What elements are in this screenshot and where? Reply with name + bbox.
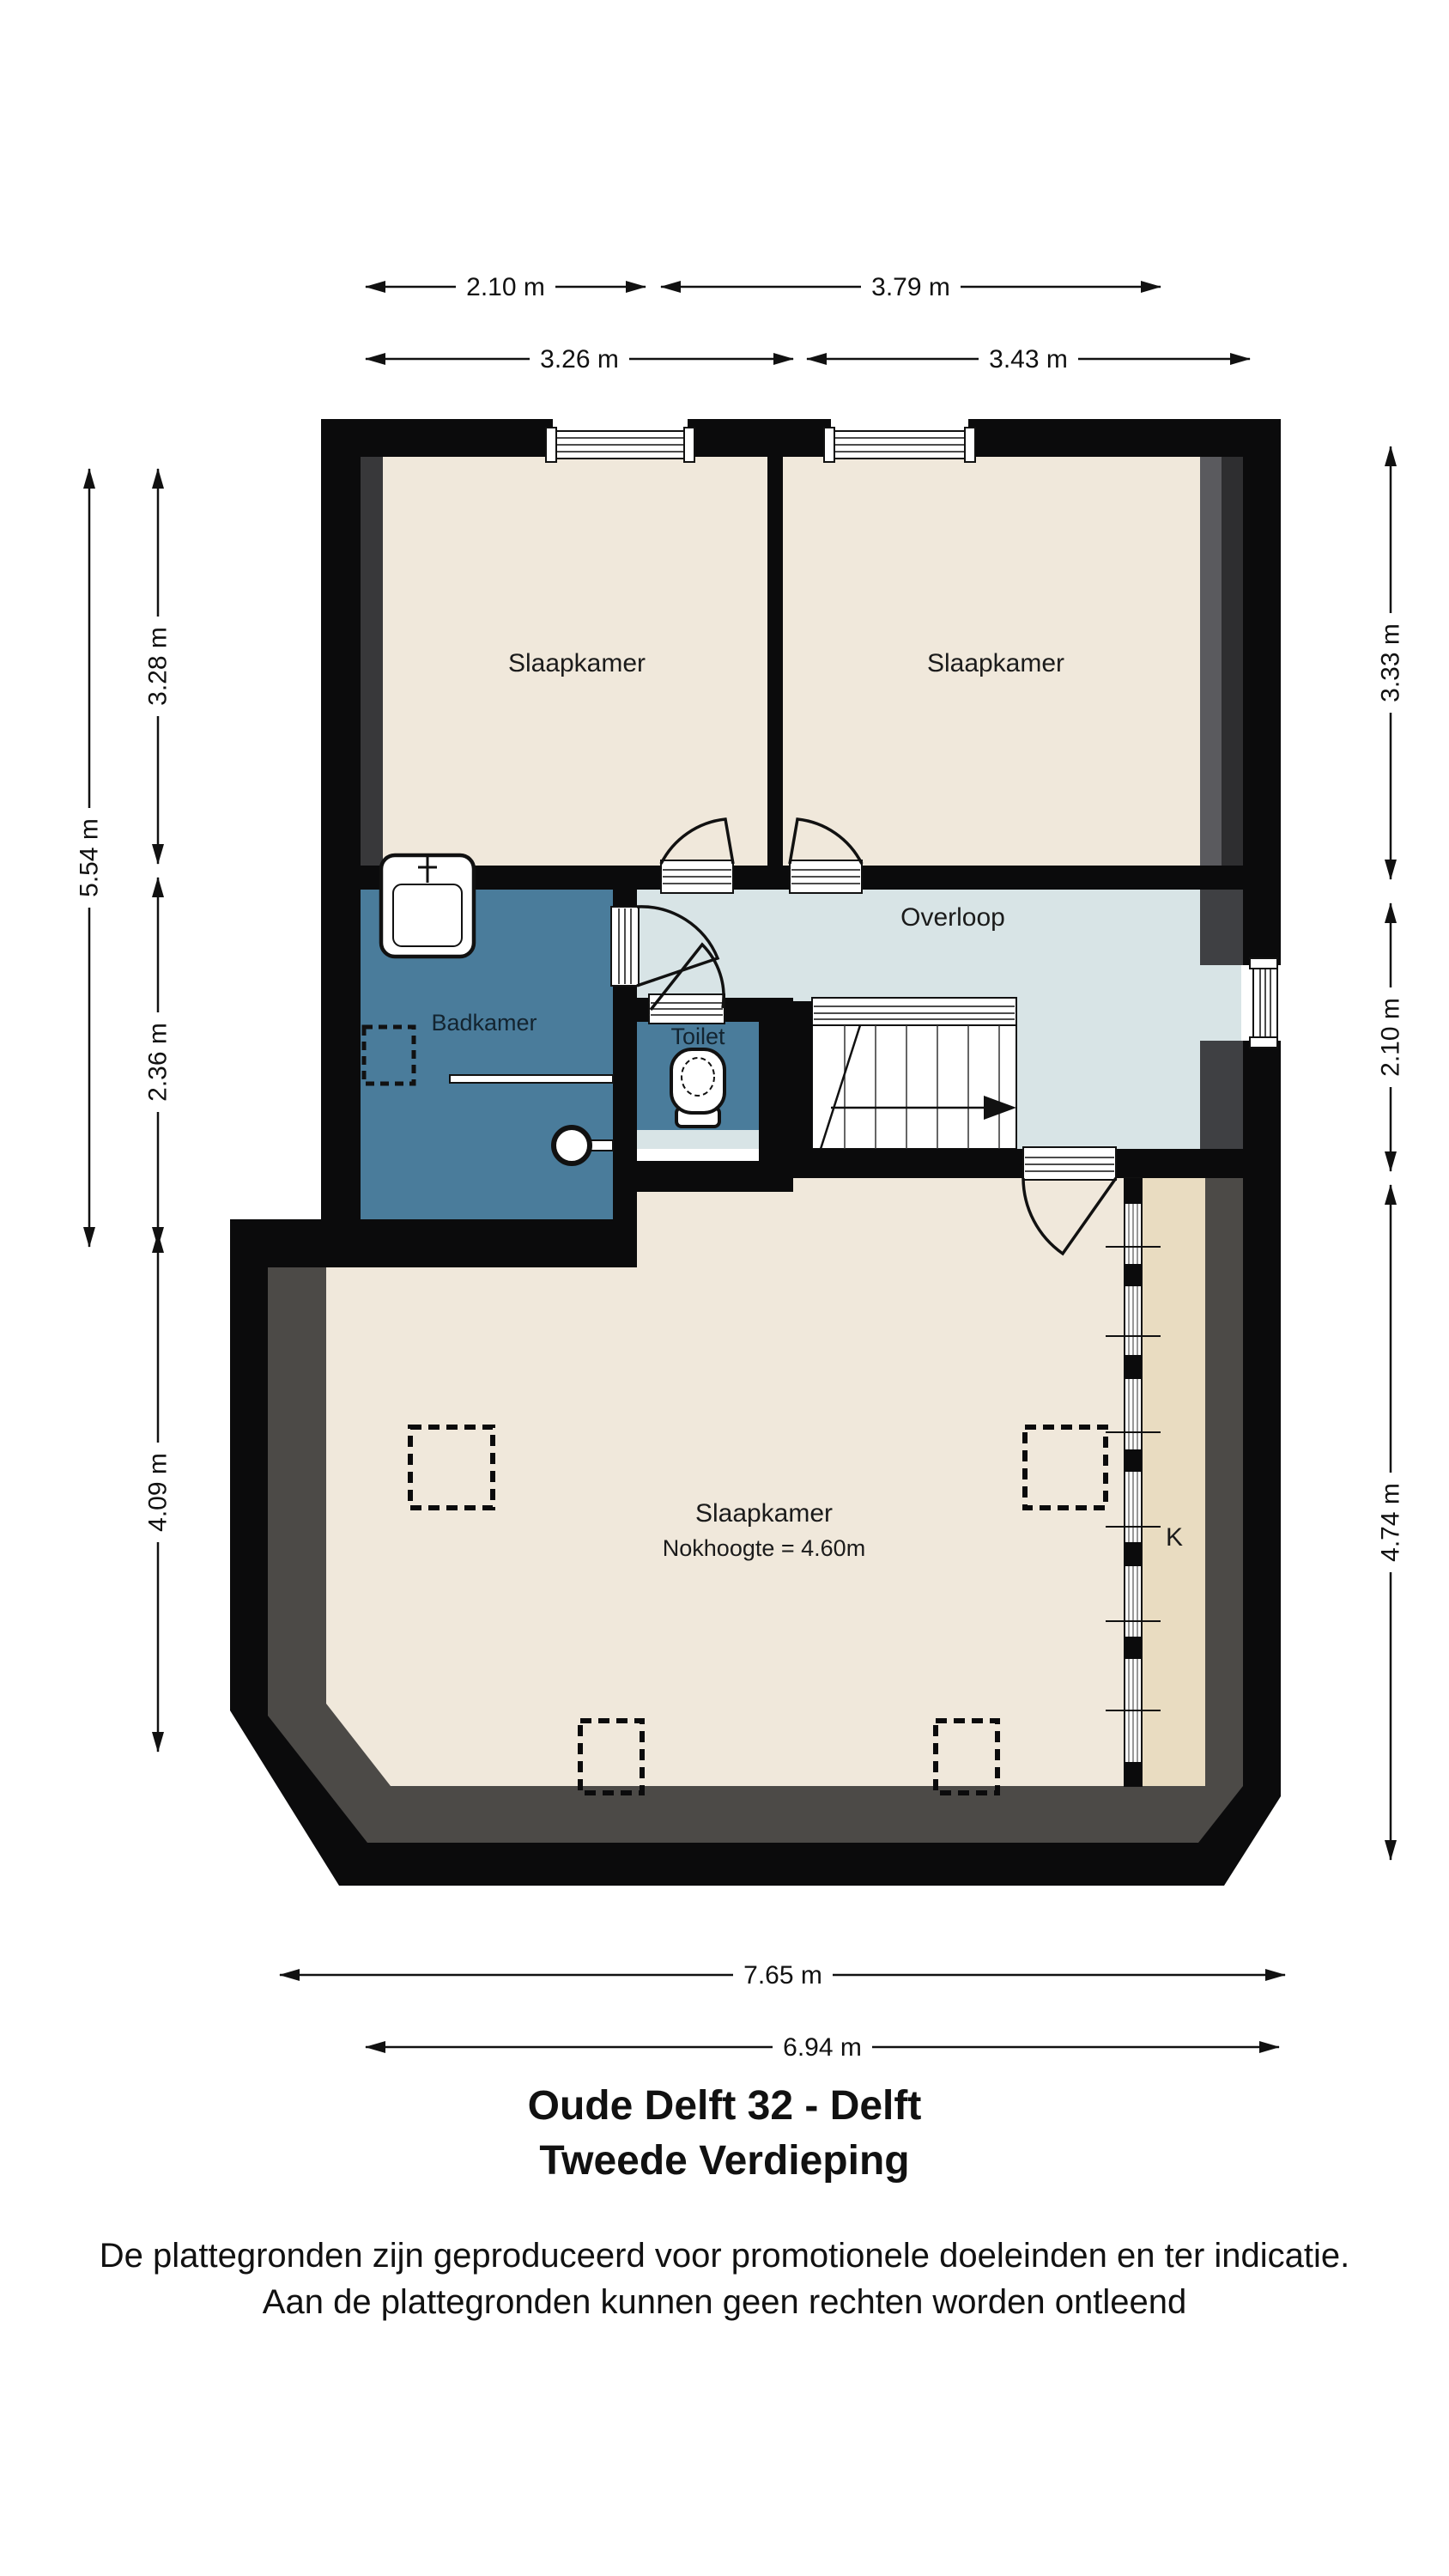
dim-left-bottom: 4.09 m [144,1233,173,1752]
wall-top-3 [968,419,1281,457]
bedroom-large-floor [326,1178,1125,1786]
dim-left-top: 3.28 m [144,469,173,864]
slope-shade-landing-upper [1200,890,1243,965]
wall-bathroom-right-2 [613,986,637,1219]
dim-label: 4.74 m [1377,1483,1405,1562]
dim-label: 2.10 m [466,273,545,301]
dim-top-row2-right: 3.43 m [807,345,1250,374]
dim-top-row1-right: 3.79 m [661,273,1161,301]
closet-floor [1142,1178,1205,1786]
wall-bedroom-bottom-2 [733,866,790,890]
slope-shade-left-bedroom [361,457,383,866]
dim-bottom-outer: 7.65 m [280,1961,1285,1990]
stairs-treads-area [812,1025,1016,1149]
dim-label: 3.26 m [540,345,619,374]
bedroom-large-label: Slaapkamer [695,1499,833,1528]
toilet-label: Toilet [670,1024,725,1049]
bedroom-top-left-label: Slaapkamer [508,649,646,677]
dim-label: 5.54 m [76,818,104,897]
radiator-icon [450,1075,613,1083]
toilet-icon [671,1049,724,1127]
dim-left-total: 5.54 m [76,469,104,1247]
page-title: Oude Delft 32 - Delft [528,2083,922,2129]
wall-toilet-bottom [637,1161,759,1192]
dim-label: 6.94 m [783,2033,862,2062]
closet-label: K [1166,1523,1183,1552]
wall-right-landing [1243,1041,1281,1149]
dim-right-top: 3.33 m [1377,447,1405,879]
dim-left-mid: 2.36 m [144,878,173,1247]
wall-right-upper [1243,419,1281,965]
wall-bathroom-right-1 [613,890,637,907]
dim-label: 2.36 m [144,1023,173,1102]
wall-bedroom-divider [767,457,783,866]
bedroom-top-right-label: Slaapkamer [927,649,1064,677]
page-subtitle: Tweede Verdieping [539,2138,909,2184]
stairs-icon [812,998,1016,1149]
disclaimer-line-2: Aan de plattegronden kunnen geen rechten… [263,2283,1186,2321]
slope-shade-right-bedroom-outer [1200,457,1222,866]
window-icon [1241,958,1282,1048]
disclaimer-line-1: De plattegronden zijn geproduceerd voor … [100,2237,1350,2275]
title-block: Oude Delft 32 - Delft Tweede Verdieping … [100,2083,1350,2321]
dim-top-row1-left: 2.10 m [366,273,646,301]
wall-toilet-right [759,998,793,1192]
slope-shade-right-bedroom-inner [1222,457,1243,866]
floorplan-drawing: Slaapkamer Slaapkamer Overloop Badkamer … [0,0,1449,2576]
dim-right-bottom: 4.74 m [1377,1185,1405,1860]
window-icon [824,419,975,462]
wall-left [321,419,361,1219]
stairs-top-sill [812,998,1016,1025]
wall-top-2 [688,419,831,457]
dim-label: 7.65 m [743,1961,822,1990]
wall-stairs-left [793,1001,812,1149]
slope-shade-landing-lower [1200,1041,1243,1149]
dim-label: 4.09 m [144,1453,173,1532]
dim-bottom-inner: 6.94 m [366,2033,1279,2062]
sink-icon [381,855,474,957]
dim-label: 3.28 m [144,627,173,706]
floorplan-page: Slaapkamer Slaapkamer Overloop Badkamer … [0,0,1449,2576]
bathroom-label: Badkamer [431,1010,537,1036]
dim-label: 3.33 m [1377,623,1405,702]
dim-right-mid: 2.10 m [1377,903,1405,1171]
landing-label: Overloop [900,903,1005,932]
bedroom-large-sublabel: Nokhoogte = 4.60m [663,1535,865,1561]
wall-bedroom-bottom-3 [862,866,1243,890]
window-icon [546,419,694,462]
dim-top-row2-left: 3.26 m [366,345,793,374]
dim-label: 3.79 m [871,273,950,301]
dim-label: 2.10 m [1377,998,1405,1077]
dim-label: 3.43 m [989,345,1068,374]
